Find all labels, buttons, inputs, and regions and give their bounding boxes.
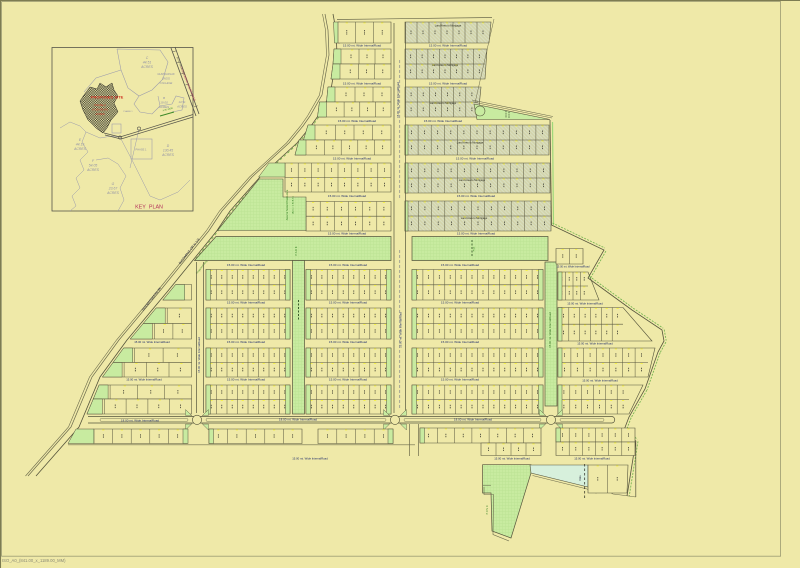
svg-text:COLLEGE: COLLEGE <box>160 81 173 85</box>
svg-text:D: D <box>167 144 170 148</box>
svg-text:B: B <box>163 96 165 100</box>
svg-text:E: E <box>79 138 82 142</box>
svg-text:PHASE 1: PHASE 1 <box>123 110 133 113</box>
svg-text:ACRES: ACRES <box>73 147 86 151</box>
svg-text:G: G <box>112 182 115 186</box>
svg-text:ACRES: ACRES <box>140 65 153 69</box>
svg-text:ACRES: ACRES <box>106 191 119 195</box>
svg-text:19.00: 19.00 <box>160 101 168 105</box>
svg-text:F: F <box>92 159 95 163</box>
svg-text:PHASE-2: PHASE-2 <box>94 103 106 107</box>
svg-text:23.67: 23.67 <box>108 187 118 191</box>
svg-text:130.45: 130.45 <box>163 149 173 153</box>
svg-text:ACRES: ACRES <box>95 112 104 116</box>
svg-text:ACRES: ACRES <box>176 105 187 109</box>
svg-text:PROPOSED SITE: PROPOSED SITE <box>91 95 124 100</box>
svg-text:GURONANAK: GURONANAK <box>157 72 175 76</box>
svg-text:ACRES: ACRES <box>158 105 169 109</box>
svg-text:EXISTING BT RD: EXISTING BT RD <box>176 56 186 75</box>
svg-text:C: C <box>146 56 149 60</box>
svg-text:14.51: 14.51 <box>179 100 186 104</box>
svg-text:44.19: 44.19 <box>76 143 85 147</box>
svg-text:54.05: 54.05 <box>89 164 98 168</box>
svg-text:ACRES: ACRES <box>86 168 99 172</box>
svg-text:44.51: 44.51 <box>143 61 152 65</box>
svg-text:ENGG: ENGG <box>162 77 170 81</box>
svg-text:ACRES: ACRES <box>161 153 174 157</box>
svg-text:(4.36+39.64): (4.36+39.64) <box>92 108 107 112</box>
svg-text:KEY PLAN: KEY PLAN <box>135 205 163 211</box>
svg-text:PHASE 1: PHASE 1 <box>136 148 148 152</box>
